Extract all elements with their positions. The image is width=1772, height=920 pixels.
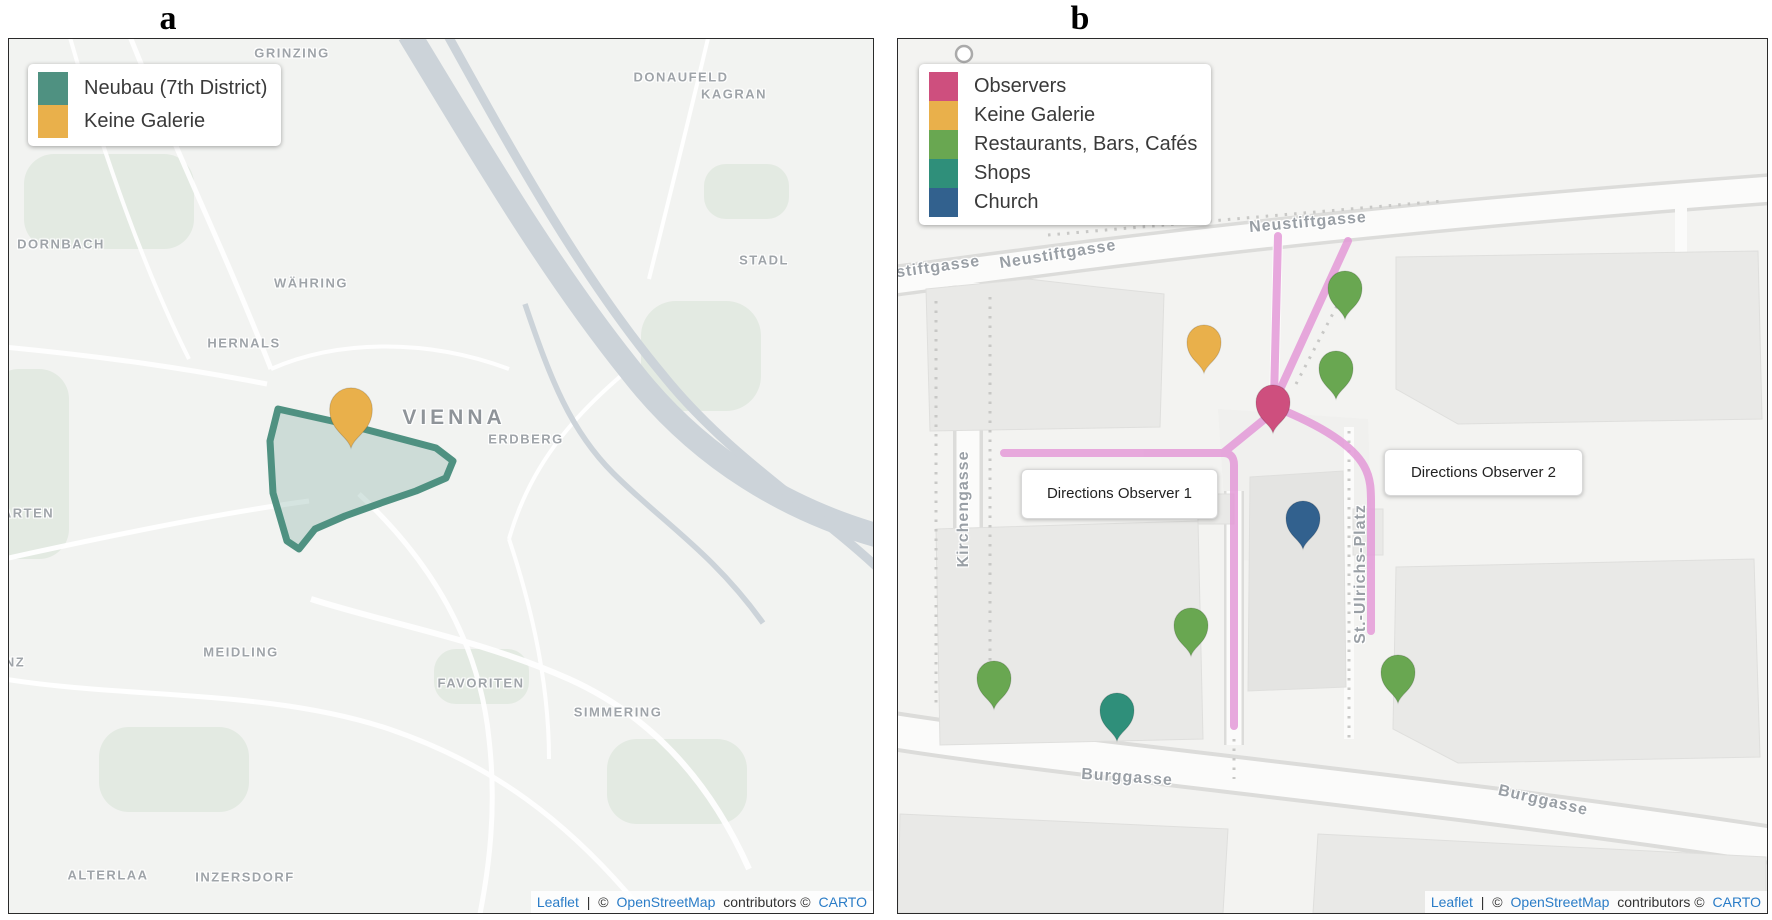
map-canvas-a[interactable]: [9, 39, 873, 913]
district-label: ALTERLAA: [67, 868, 148, 883]
panel-b-letter: b: [1060, 0, 1100, 38]
tooltip-directions-observer-2: Directions Observer 2: [1384, 449, 1583, 496]
tooltip-directions-observer-1: Directions Observer 1: [1021, 469, 1218, 519]
legend-swatch-shops: [929, 159, 958, 188]
river-danube: [409, 39, 873, 623]
legend-label: Shops: [974, 162, 1031, 185]
legend-panel-a: Neubau (7th District) Keine Galerie: [28, 64, 281, 146]
district-label: FAVORITEN: [438, 676, 525, 691]
legend-label: Keine Galerie: [974, 104, 1095, 127]
legend-item: Church: [929, 188, 1197, 217]
copyright-symbol: ©: [1492, 894, 1502, 910]
street-label: Kirchengasse: [955, 451, 973, 568]
district-label: DORNBACH: [17, 237, 105, 252]
district-label: HERNALS: [207, 336, 280, 351]
attribution-separator: |: [587, 894, 591, 910]
city-label-vienna: VIENNA: [402, 406, 505, 430]
legend-item: Keine Galerie: [929, 101, 1197, 130]
district-label: MEIDLING: [203, 645, 279, 660]
legend-swatch-galerie: [929, 101, 958, 130]
contributors-text: contributors ©: [1617, 894, 1704, 910]
street-label: St.-Ulrichs-Platz: [1352, 504, 1370, 644]
legend-item: Shops: [929, 159, 1197, 188]
district-label: KAGRAN: [701, 87, 767, 102]
legend-label: Church: [974, 191, 1038, 214]
legend-swatch-galerie: [38, 105, 68, 138]
attribution-separator: |: [1481, 894, 1485, 910]
attribution-bar: Leaflet | © OpenStreetMap contributors ©…: [1425, 891, 1767, 913]
district-label: SIMMERING: [574, 705, 663, 720]
district-label: INZERSDORF: [195, 870, 295, 885]
district-label: ARTEN: [8, 506, 54, 521]
map-panel-detail[interactable]: eustiftgasse Neustiftgasse Neustiftgasse…: [897, 38, 1768, 914]
legend-item: Keine Galerie: [38, 105, 267, 138]
attribution-bar: Leaflet | © OpenStreetMap contributors ©…: [531, 891, 873, 913]
legend-label: Neubau (7th District): [84, 77, 267, 100]
panel-a-letter: a: [148, 0, 188, 38]
marker-keine-galerie[interactable]: [1187, 325, 1221, 373]
legend-item: Observers: [929, 72, 1197, 101]
legend-label: Keine Galerie: [84, 110, 205, 133]
copyright-symbol: ©: [598, 894, 608, 910]
station-icon: [956, 46, 972, 62]
district-label: WÄHRING: [274, 276, 348, 291]
leaflet-link[interactable]: Leaflet: [537, 894, 579, 910]
legend-item: Neubau (7th District): [38, 72, 267, 105]
legend-label: Restaurants, Bars, Cafés: [974, 133, 1197, 156]
openstreetmap-link[interactable]: OpenStreetMap: [1511, 894, 1610, 910]
carto-link[interactable]: CARTO: [819, 894, 868, 910]
route-observer-2-up: [1274, 236, 1278, 399]
marker-restaurant[interactable]: [1328, 271, 1362, 319]
map-panel-overview[interactable]: GRINZING DONAUFELD KAGRAN DORNBACH WÄHRI…: [8, 38, 874, 914]
district-label: STADL: [739, 253, 789, 268]
legend-swatch-church: [929, 188, 958, 217]
legend-swatch-neubau: [38, 72, 68, 105]
legend-label: Observers: [974, 75, 1066, 98]
marker-restaurant[interactable]: [1319, 351, 1353, 399]
contributors-text: contributors ©: [723, 894, 810, 910]
carto-link[interactable]: CARTO: [1713, 894, 1762, 910]
district-label: NZ: [8, 655, 25, 670]
legend-swatch-observers: [929, 72, 958, 101]
district-label: DONAUFELD: [633, 70, 728, 85]
legend-panel-b: Observers Keine Galerie Restaurants, Bar…: [919, 64, 1211, 225]
legend-item: Restaurants, Bars, Cafés: [929, 130, 1197, 159]
openstreetmap-link[interactable]: OpenStreetMap: [617, 894, 716, 910]
district-label: ERDBERG: [488, 432, 564, 447]
leaflet-link[interactable]: Leaflet: [1431, 894, 1473, 910]
district-label: GRINZING: [254, 46, 330, 61]
legend-swatch-restaurants: [929, 130, 958, 159]
